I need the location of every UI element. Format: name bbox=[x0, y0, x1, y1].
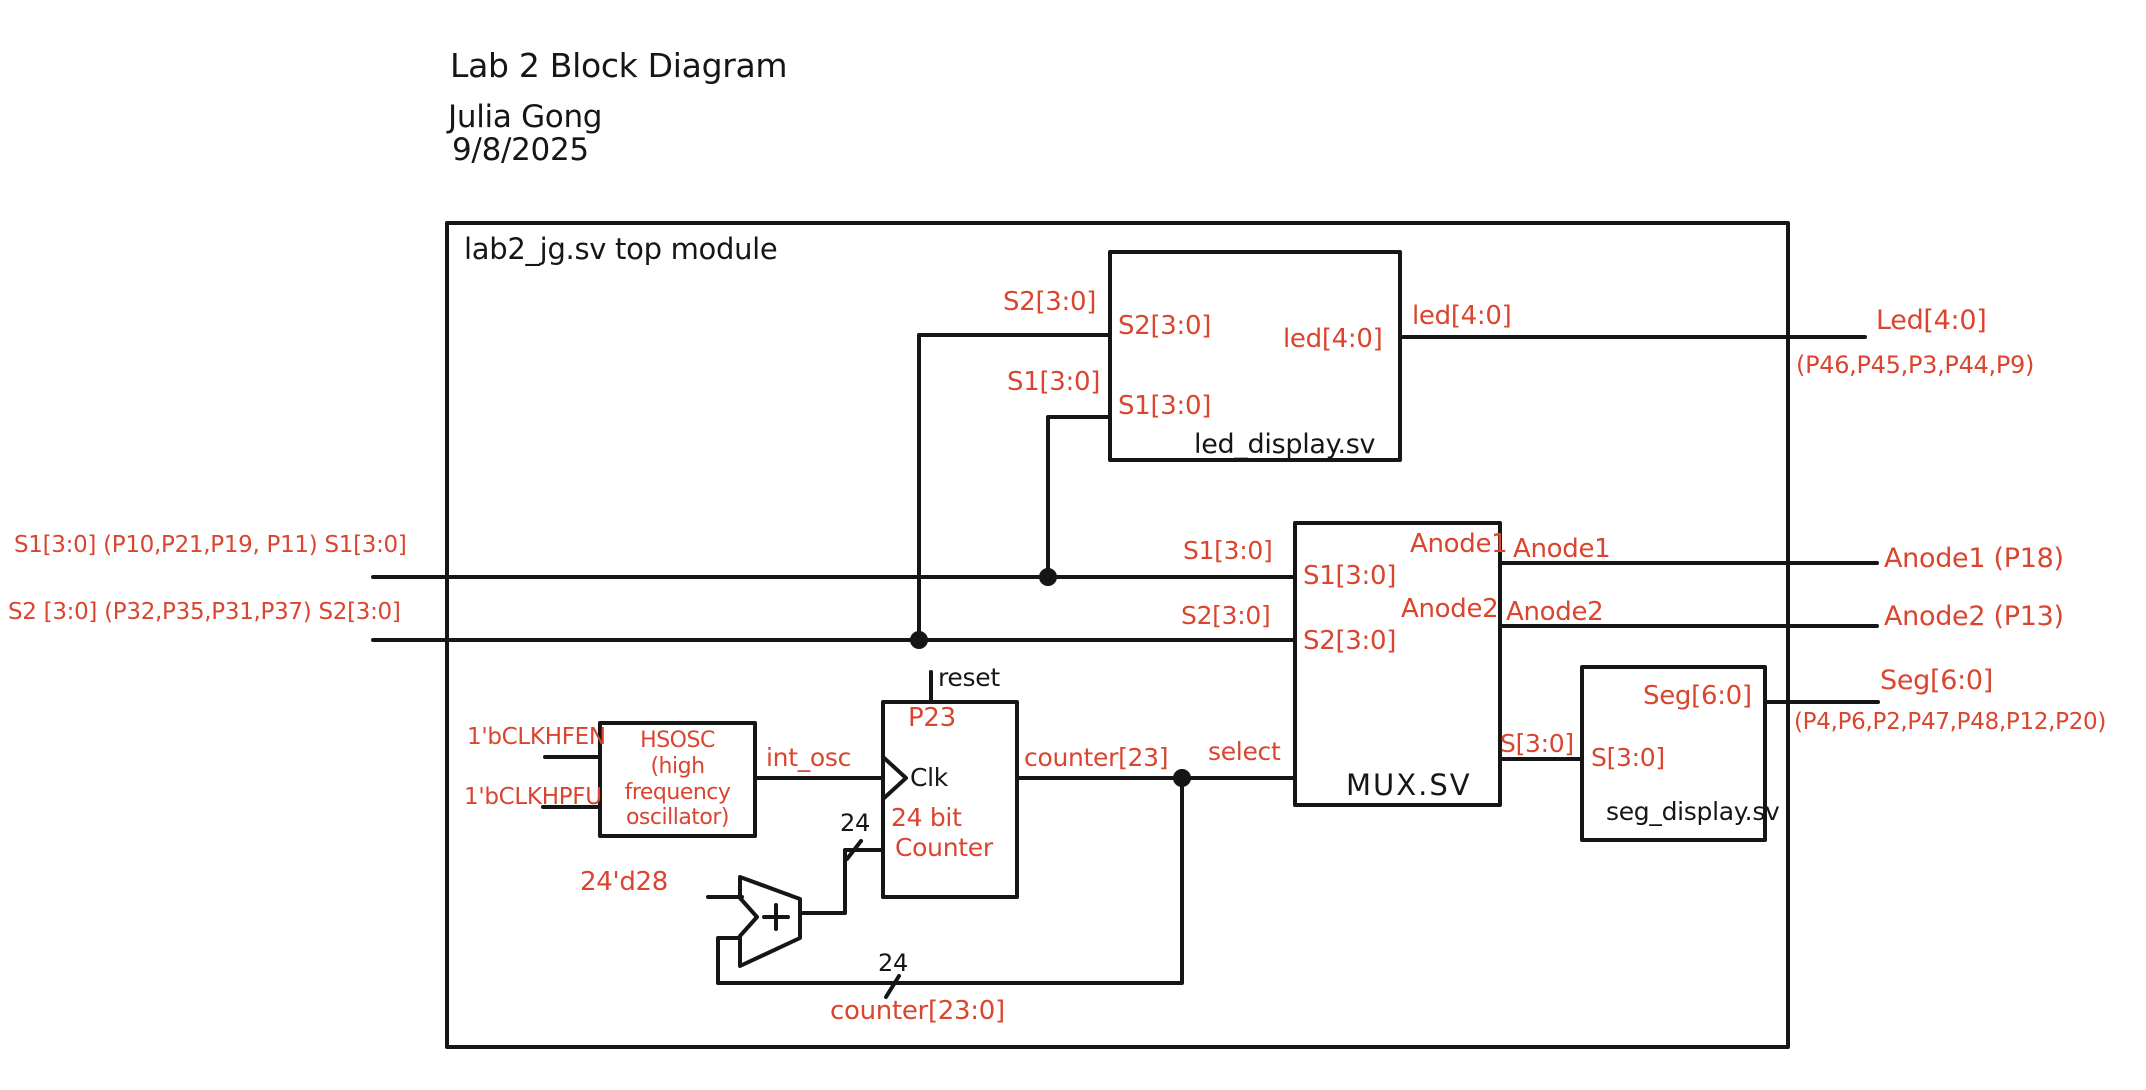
bus-slash-feedback bbox=[886, 976, 899, 997]
output-seg-label: Seg[6:0] bbox=[1880, 666, 1993, 696]
title-line2-author: Julia Gong bbox=[448, 100, 602, 134]
led-display-port-led: led[4:0] bbox=[1283, 325, 1382, 354]
hsosc-name: HSOSC (high frequency oscillator) bbox=[600, 723, 755, 836]
seg-display-port-s: S[3:0] bbox=[1591, 744, 1665, 772]
net-anode2-out: Anode2 bbox=[1506, 598, 1603, 627]
output-anode2-label: Anode2 (P13) bbox=[1884, 602, 2064, 632]
title-line1: Lab 2 Block Diagram bbox=[450, 48, 787, 84]
net-s2-to-led: S2[3:0] bbox=[1003, 288, 1096, 317]
wire-adder-to-counter bbox=[800, 850, 883, 913]
junction-dot-select bbox=[1175, 771, 1189, 785]
top-module-label: lab2_jg.sv top module bbox=[464, 234, 777, 266]
hsosc-line3: oscillator) bbox=[626, 805, 729, 831]
mux-port-anode1: Anode1 bbox=[1410, 530, 1507, 559]
net-select: select bbox=[1208, 738, 1280, 766]
clk-triangle-icon bbox=[883, 757, 906, 799]
output-led-pins: (P46,P45,P3,P44,P9) bbox=[1796, 352, 2034, 378]
counter-reset-pin: P23 bbox=[908, 704, 956, 733]
block-diagram-canvas: Lab 2 Block Diagram Julia Gong 9/8/2025 … bbox=[0, 0, 2146, 1090]
mux-name: MUX.SV bbox=[1346, 770, 1472, 802]
counter-clk-label: Clk bbox=[910, 764, 948, 792]
output-seg-pins: (P4,P6,P2,P47,P48,P12,P20) bbox=[1794, 710, 2106, 735]
led-display-name: led_display.sv bbox=[1194, 430, 1375, 460]
top-module-box bbox=[447, 223, 1788, 1047]
title-line3-date: 9/8/2025 bbox=[452, 133, 589, 167]
net-counter-msb: counter[23] bbox=[1024, 744, 1168, 772]
hsosc-line2: (high frequency bbox=[600, 754, 755, 806]
output-anode1-label: Anode1 (P18) bbox=[1884, 544, 2064, 574]
net-clkhfen: 1'bCLKHFEN bbox=[467, 725, 606, 750]
net-s2-to-mux: S2[3:0] bbox=[1181, 602, 1270, 630]
net-clkhpfu: 1'bCLKHPFU bbox=[464, 785, 602, 810]
counter-reset-label: reset bbox=[938, 664, 1000, 692]
net-anode1-out: Anode1 bbox=[1513, 535, 1610, 564]
output-led-label: Led[4:0] bbox=[1876, 306, 1986, 336]
junction-dot-s1 bbox=[1041, 570, 1055, 584]
wire-s1-branch-to-led bbox=[1048, 417, 1110, 577]
net-counter-bus: counter[23:0] bbox=[830, 997, 1005, 1026]
net-s-to-seg: S[3:0] bbox=[1500, 730, 1574, 758]
junction-dot-s2 bbox=[912, 633, 926, 647]
net-s1-to-led: S1[3:0] bbox=[1007, 368, 1100, 397]
hsosc-line1: HSOSC bbox=[640, 728, 715, 754]
mux-port-anode2: Anode2 bbox=[1401, 595, 1498, 624]
input-s1-label: S1[3:0] (P10,P21,P19, P11) S1[3:0] bbox=[14, 533, 407, 558]
net-s1-to-mux: S1[3:0] bbox=[1183, 537, 1272, 565]
net-int-osc: int_osc bbox=[766, 744, 851, 772]
counter-name-line1: 24 bit bbox=[891, 804, 962, 832]
input-s2-label: S2 [3:0] (P32,P35,P31,P37) S2[3:0] bbox=[8, 600, 401, 625]
mux-port-s1: S1[3:0] bbox=[1303, 562, 1396, 591]
adder-plus-icon bbox=[764, 905, 788, 929]
led-display-port-s2: S2[3:0] bbox=[1118, 312, 1211, 341]
seg-display-port-seg: Seg[6:0] bbox=[1643, 682, 1752, 711]
bus-width-feedback: 24 bbox=[878, 950, 908, 976]
counter-name-line2: Counter bbox=[895, 834, 993, 862]
mux-port-s2: S2[3:0] bbox=[1303, 627, 1396, 656]
seg-display-name: seg_display.sv bbox=[1606, 798, 1780, 826]
bus-width-in: 24 bbox=[840, 810, 870, 836]
led-display-port-s1: S1[3:0] bbox=[1118, 392, 1211, 421]
adder-shape bbox=[740, 877, 800, 966]
net-led-out: led[4:0] bbox=[1412, 302, 1511, 331]
net-const28: 24'd28 bbox=[580, 868, 668, 897]
